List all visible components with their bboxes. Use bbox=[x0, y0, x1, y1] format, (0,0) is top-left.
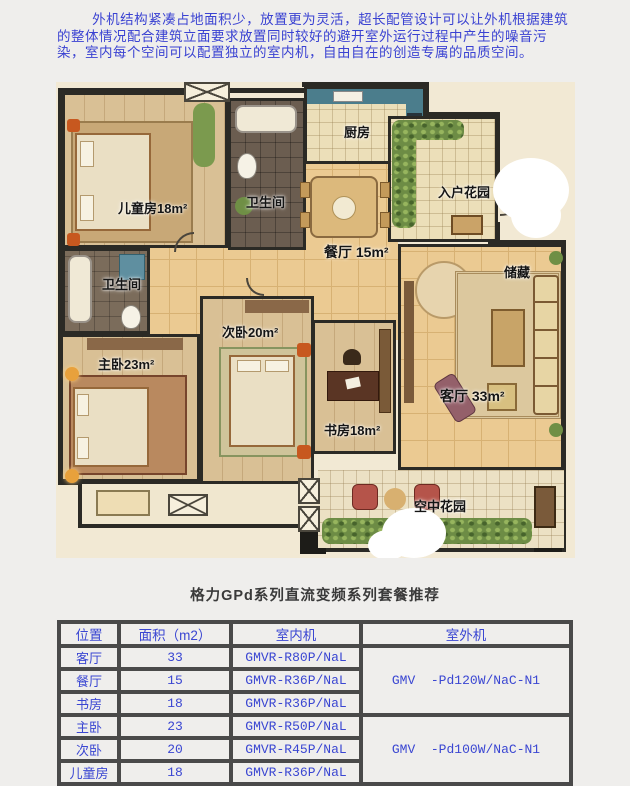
intro-paragraph: 外机结构紧凑占地面积少，放置更为灵活，超长配管设计可以让外机根据建筑的整体情况配… bbox=[57, 12, 574, 62]
cell-area: 18 bbox=[120, 762, 230, 783]
header-outdoor: 室外机 bbox=[362, 623, 570, 645]
plant bbox=[193, 103, 215, 167]
header-indoor: 室内机 bbox=[232, 623, 360, 645]
room-label-storage: 储藏 bbox=[504, 262, 530, 281]
shaft-box bbox=[184, 82, 230, 102]
lamp bbox=[65, 469, 79, 483]
balcony-bench bbox=[96, 490, 150, 516]
bookshelf bbox=[379, 329, 391, 413]
dining-chair bbox=[300, 212, 310, 228]
floor-plan: 儿童房18m² 卫生间 厨房 入户花园 储藏 餐厅 15m² 卫生间 bbox=[56, 82, 575, 558]
room-children bbox=[62, 92, 228, 248]
patio-chair bbox=[352, 484, 378, 510]
garden-cabinet bbox=[534, 486, 556, 528]
cell-area: 20 bbox=[120, 739, 230, 760]
cell-location: 书房 bbox=[60, 693, 118, 714]
table-row: 主卧 23 GMVR-R50P/NaL GMV -Pd100W/NaC-N1 bbox=[60, 716, 570, 737]
room-label-dining: 餐厅 15m² bbox=[324, 242, 389, 262]
room-living bbox=[398, 244, 564, 470]
cloud-blob bbox=[511, 192, 561, 238]
nightstand bbox=[67, 119, 80, 132]
toilet bbox=[237, 153, 257, 179]
dining-table bbox=[310, 176, 378, 238]
cell-outdoor-unit-1: GMV -Pd120W/NaC-N1 bbox=[362, 647, 570, 714]
cell-area: 18 bbox=[120, 693, 230, 714]
cell-indoor: GMVR-R45P/NaL bbox=[232, 739, 360, 760]
cell-indoor: GMVR-R36P/NaL bbox=[232, 762, 360, 783]
room-label-second: 次卧20m² bbox=[222, 322, 278, 341]
page: { "intro": { "text": "外机结构紧凑占地面积少，放置更为灵活… bbox=[0, 0, 630, 777]
nightstand bbox=[297, 343, 311, 357]
wall bbox=[78, 524, 320, 528]
bathtub bbox=[235, 105, 297, 133]
shaft-box bbox=[298, 506, 320, 532]
cell-area: 23 bbox=[120, 716, 230, 737]
cell-location: 次卧 bbox=[60, 739, 118, 760]
room-label-children: 儿童房18m² bbox=[118, 198, 187, 217]
table-header-row: 位置 面积（m2） 室内机 室外机 bbox=[60, 623, 570, 645]
section-title: 格力GPd系列直流变频系列套餐推荐 bbox=[0, 584, 630, 605]
master-bed bbox=[73, 387, 149, 467]
cell-area: 33 bbox=[120, 647, 230, 668]
nightstand bbox=[67, 233, 80, 246]
room-label-living: 客厅 33m² bbox=[440, 386, 505, 406]
room-label-study: 书房18m² bbox=[324, 420, 380, 439]
desk-chair bbox=[343, 349, 361, 365]
header-area: 面积（m2） bbox=[120, 623, 230, 645]
wardrobe bbox=[87, 338, 183, 350]
shaft-box bbox=[168, 494, 208, 516]
cloud-blob bbox=[368, 530, 408, 558]
kitchen-sink bbox=[333, 91, 363, 102]
cell-indoor: GMVR-R36P/NaL bbox=[232, 670, 360, 691]
plant bbox=[549, 251, 563, 265]
header-location: 位置 bbox=[60, 623, 118, 645]
cell-location: 儿童房 bbox=[60, 762, 118, 783]
cell-indoor: GMVR-R36P/NaL bbox=[232, 693, 360, 714]
lamp bbox=[65, 367, 79, 381]
cell-area: 15 bbox=[120, 670, 230, 691]
room-bath-top bbox=[228, 98, 306, 250]
room-label-master: 主卧23m² bbox=[98, 354, 154, 373]
tv-cabinet bbox=[404, 281, 414, 403]
room-label-sky-garden: 空中花园 bbox=[414, 496, 466, 515]
toilet bbox=[121, 305, 141, 329]
plant bbox=[549, 423, 563, 437]
cell-outdoor-unit-2: GMV -Pd100W/NaC-N1 bbox=[362, 716, 570, 783]
cell-location: 主卧 bbox=[60, 716, 118, 737]
coffee-table bbox=[491, 309, 525, 367]
sofa bbox=[533, 275, 559, 415]
cell-location: 餐厅 bbox=[60, 670, 118, 691]
dining-chair bbox=[380, 182, 390, 198]
cell-location: 客厅 bbox=[60, 647, 118, 668]
console-table bbox=[451, 215, 483, 235]
room-label-entry-garden: 入户花园 bbox=[438, 182, 490, 201]
nightstand bbox=[297, 445, 311, 459]
table-row: 客厅 33 GMVR-R80P/NaL GMV -Pd120W/NaC-N1 bbox=[60, 647, 570, 668]
study-desk bbox=[327, 371, 379, 401]
bathtub bbox=[68, 255, 92, 323]
room-label-bath-left: 卫生间 bbox=[102, 274, 141, 293]
package-table: 位置 面积（m2） 室内机 室外机 客厅 33 GMVR-R80P/NaL GM… bbox=[57, 620, 573, 786]
room-label-kitchen: 厨房 bbox=[344, 122, 370, 141]
shaft-box bbox=[298, 478, 320, 504]
room-entry-garden bbox=[388, 116, 498, 242]
room-label-bath-top: 卫生间 bbox=[246, 192, 285, 211]
dining-chair bbox=[380, 212, 390, 228]
cell-indoor: GMVR-R80P/NaL bbox=[232, 647, 360, 668]
garden-plants bbox=[392, 120, 464, 140]
patio-table bbox=[384, 488, 406, 510]
dining-chair bbox=[300, 182, 310, 198]
cell-indoor: GMVR-R50P/NaL bbox=[232, 716, 360, 737]
second-bed bbox=[229, 355, 295, 447]
wardrobe bbox=[245, 300, 309, 313]
